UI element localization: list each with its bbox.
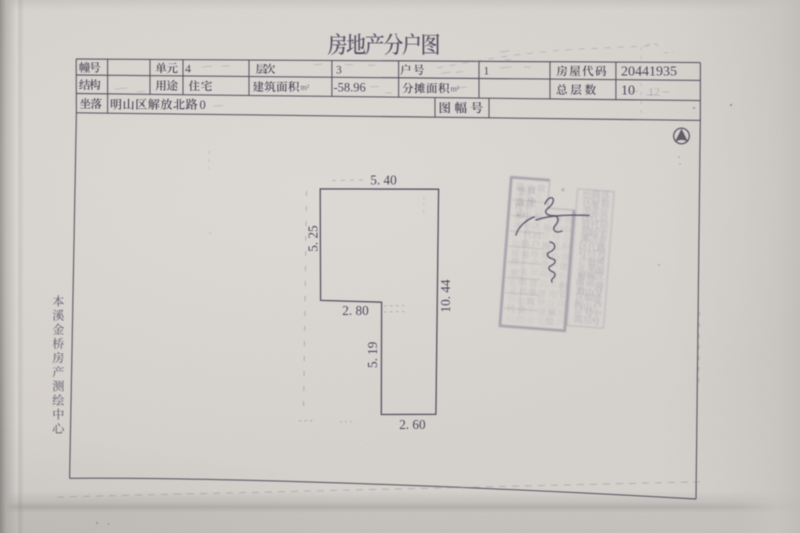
svg-text:2. 60: 2. 60 <box>399 417 426 432</box>
svg-text:2. 80: 2. 80 <box>342 303 369 318</box>
svg-text:3: 3 <box>336 64 342 76</box>
svg-text:10. 44: 10. 44 <box>438 279 453 312</box>
svg-text:m²: m² <box>451 85 460 94</box>
svg-text:5. 19: 5. 19 <box>365 341 380 368</box>
svg-text:10: 10 <box>621 83 635 98</box>
svg-text:1: 1 <box>484 66 490 78</box>
svg-text:20441935: 20441935 <box>621 65 677 80</box>
svg-text:4: 4 <box>185 61 191 75</box>
svg-text:0: 0 <box>200 98 206 112</box>
svg-text:-58.96: -58.96 <box>334 81 366 95</box>
svg-text:12: 12 <box>648 85 660 99</box>
svg-text:m²: m² <box>301 83 310 92</box>
svg-text:5. 25: 5. 25 <box>305 225 320 252</box>
svg-text:5. 40: 5. 40 <box>370 173 397 188</box>
